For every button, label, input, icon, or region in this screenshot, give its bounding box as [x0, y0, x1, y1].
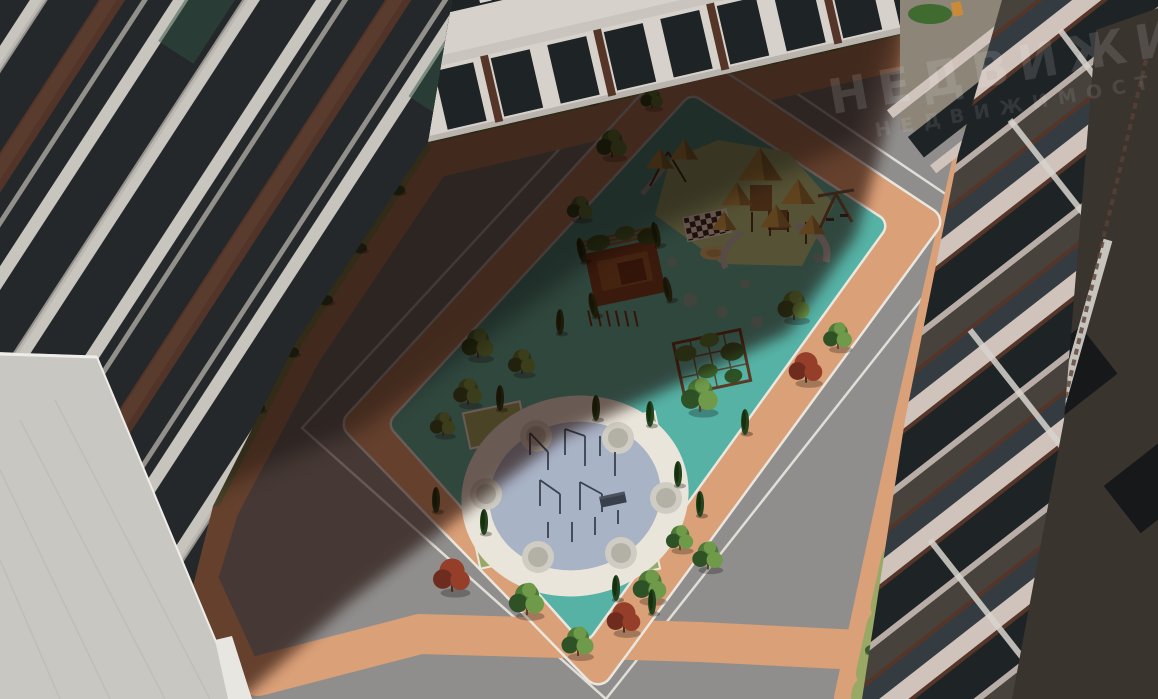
render-canvas: НЕДВИЖИМ НЕДВИЖИМОСТЬ [0, 0, 1158, 699]
courtyard-render: НЕДВИЖИМ НЕДВИЖИМОСТЬ [0, 0, 1158, 699]
